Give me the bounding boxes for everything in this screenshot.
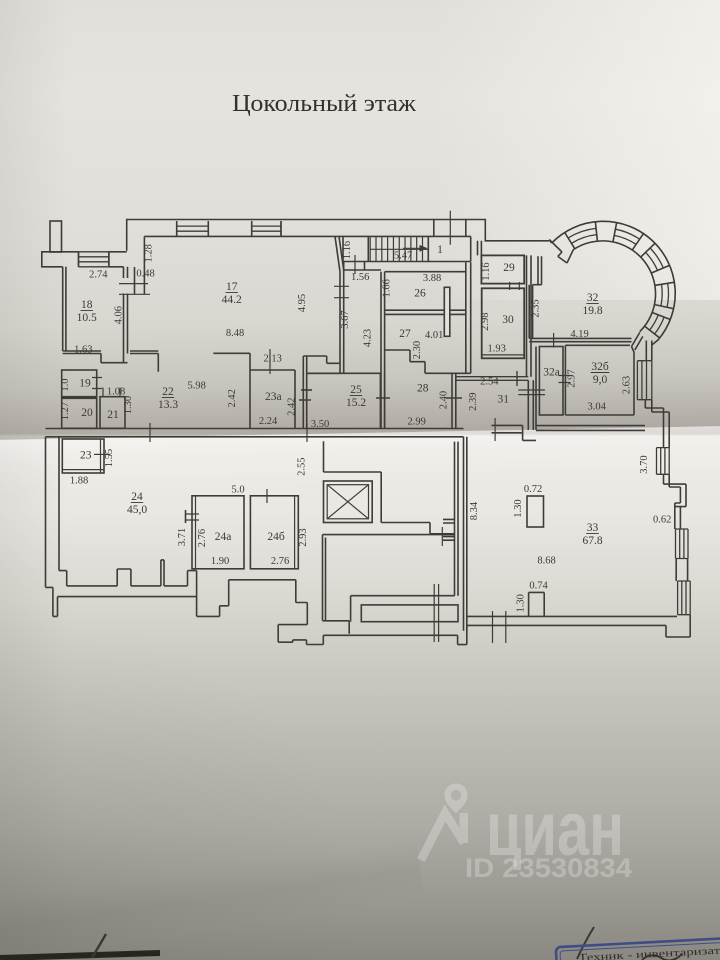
svg-text:9,0: 9,0 [593, 374, 608, 386]
svg-text:31: 31 [498, 393, 510, 405]
svg-text:44.2: 44.2 [222, 294, 242, 306]
svg-text:1.66: 1.66 [381, 279, 392, 297]
svg-text:1.88: 1.88 [70, 475, 88, 486]
svg-text:4.19: 4.19 [570, 329, 588, 340]
svg-text:3.71: 3.71 [177, 528, 188, 546]
svg-text:1.30: 1.30 [123, 396, 134, 414]
svg-text:5.0: 5.0 [231, 485, 244, 496]
svg-text:4.01: 4.01 [425, 330, 443, 341]
svg-text:33: 33 [587, 522, 599, 534]
svg-text:4.06: 4.06 [114, 306, 125, 324]
svg-text:1.30: 1.30 [513, 499, 524, 517]
svg-text:15.2: 15.2 [346, 397, 366, 409]
svg-text:2.35: 2.35 [530, 299, 541, 317]
svg-text:2.76: 2.76 [271, 556, 289, 567]
svg-text:1.93: 1.93 [488, 343, 506, 354]
svg-text:2.76: 2.76 [197, 529, 208, 547]
svg-text:2.93: 2.93 [298, 528, 309, 546]
svg-text:17: 17 [226, 281, 238, 293]
svg-text:0.72: 0.72 [524, 484, 542, 495]
svg-text:67.8: 67.8 [582, 535, 602, 547]
svg-text:24: 24 [131, 491, 143, 503]
svg-text:5.98: 5.98 [188, 381, 206, 392]
svg-text:32: 32 [587, 292, 599, 304]
svg-text:2.99: 2.99 [408, 417, 426, 428]
svg-text:1.55: 1.55 [104, 449, 115, 467]
svg-text:26: 26 [414, 288, 426, 300]
svg-text:2.42: 2.42 [227, 389, 238, 407]
svg-text:2.97: 2.97 [567, 369, 578, 387]
svg-text:2.30: 2.30 [412, 341, 423, 359]
svg-text:1.16: 1.16 [481, 262, 492, 280]
svg-text:24б: 24б [267, 531, 285, 543]
svg-text:18: 18 [81, 299, 93, 311]
svg-text:2.42: 2.42 [286, 398, 297, 416]
svg-text:1.0: 1.0 [60, 378, 71, 391]
svg-text:19.8: 19.8 [583, 305, 603, 317]
svg-text:1.56: 1.56 [351, 272, 369, 283]
svg-text:3.04: 3.04 [588, 402, 607, 413]
svg-text:2.40: 2.40 [438, 391, 449, 409]
svg-text:10.5: 10.5 [77, 312, 97, 324]
svg-text:2.74: 2.74 [89, 270, 108, 281]
svg-text:20: 20 [81, 407, 93, 419]
svg-text:32а: 32а [543, 367, 560, 379]
svg-text:28: 28 [417, 382, 429, 394]
svg-text:8.34: 8.34 [469, 501, 480, 520]
svg-text:8.48: 8.48 [226, 328, 244, 339]
svg-text:0.62: 0.62 [653, 515, 671, 526]
svg-text:1.30: 1.30 [516, 594, 527, 612]
svg-text:2.54: 2.54 [480, 377, 499, 388]
svg-text:21: 21 [107, 409, 119, 421]
svg-text:25: 25 [350, 384, 362, 396]
svg-text:1.27: 1.27 [60, 402, 71, 420]
svg-text:3.88: 3.88 [423, 273, 441, 284]
svg-text:45,0: 45,0 [127, 504, 147, 516]
svg-text:ID 23530834: ID 23530834 [465, 853, 632, 883]
svg-text:4.95: 4.95 [297, 294, 308, 312]
svg-text:1.28: 1.28 [144, 244, 155, 262]
svg-text:29: 29 [503, 262, 515, 274]
svg-text:4.23: 4.23 [363, 329, 374, 347]
svg-text:2.55: 2.55 [297, 458, 308, 476]
svg-text:13.3: 13.3 [158, 399, 178, 411]
svg-text:30: 30 [502, 314, 514, 326]
svg-text:27: 27 [399, 328, 411, 340]
svg-text:1: 1 [437, 244, 443, 256]
svg-text:1.16: 1.16 [342, 241, 353, 259]
svg-text:2.63: 2.63 [621, 376, 632, 394]
svg-text:1.90: 1.90 [211, 556, 229, 567]
svg-text:Цокольный этаж: Цокольный этаж [232, 90, 417, 117]
svg-text:5.47: 5.47 [394, 251, 412, 262]
svg-text:2.39: 2.39 [468, 393, 479, 411]
svg-text:2.13: 2.13 [264, 354, 282, 365]
svg-text:23а: 23а [265, 391, 282, 403]
svg-text:24а: 24а [215, 531, 232, 543]
svg-text:3.67: 3.67 [340, 310, 351, 328]
svg-text:19: 19 [79, 378, 91, 390]
svg-text:3.50: 3.50 [311, 419, 329, 430]
svg-text:2.98: 2.98 [480, 313, 491, 331]
svg-text:1.63: 1.63 [74, 345, 92, 356]
svg-text:0.74: 0.74 [529, 581, 548, 592]
svg-text:22: 22 [162, 386, 174, 398]
svg-text:23: 23 [80, 450, 92, 462]
svg-text:32б: 32б [591, 361, 609, 373]
svg-text:8.68: 8.68 [537, 556, 555, 567]
svg-text:2.24: 2.24 [259, 416, 278, 427]
svg-text:0.48: 0.48 [136, 269, 154, 280]
svg-text:3.70: 3.70 [639, 455, 650, 473]
